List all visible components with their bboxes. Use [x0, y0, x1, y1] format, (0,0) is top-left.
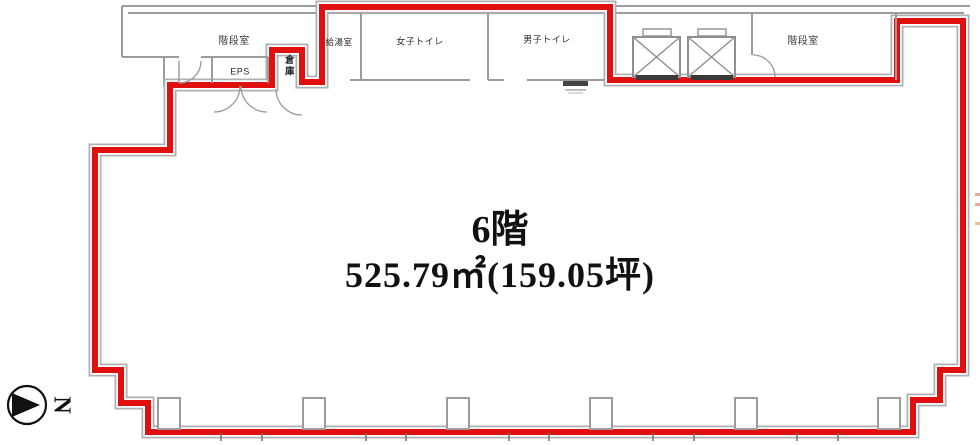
north-arrow-icon — [8, 386, 46, 424]
window-pillars — [158, 398, 900, 429]
edge-artifact — [975, 193, 980, 225]
floor-area: 525.79㎡(159.05坪) — [150, 246, 850, 298]
room-label-storage: 倉庫 — [283, 55, 293, 78]
floor-plan: 階段室 EPS 倉庫 給湯室 女子トイレ 男子トイレ 階段室 6階 525.79… — [0, 0, 980, 445]
elevator-right — [688, 29, 735, 80]
room-label-stairwell-right: 階段室 — [787, 37, 819, 47]
washbasin-fixture — [563, 81, 588, 93]
room-label-eps: EPS — [230, 68, 250, 77]
north-label: N — [48, 396, 75, 413]
room-label-stairwell-left: 階段室 — [218, 37, 250, 47]
room-label-kitchenette: 給湯室 — [325, 38, 352, 47]
room-label-womens-toilet: 女子トイレ — [396, 38, 444, 47]
room-label-mens-toilet: 男子トイレ — [523, 36, 571, 45]
floor-title: 6階 — [150, 198, 850, 253]
elevator-left — [633, 29, 680, 80]
